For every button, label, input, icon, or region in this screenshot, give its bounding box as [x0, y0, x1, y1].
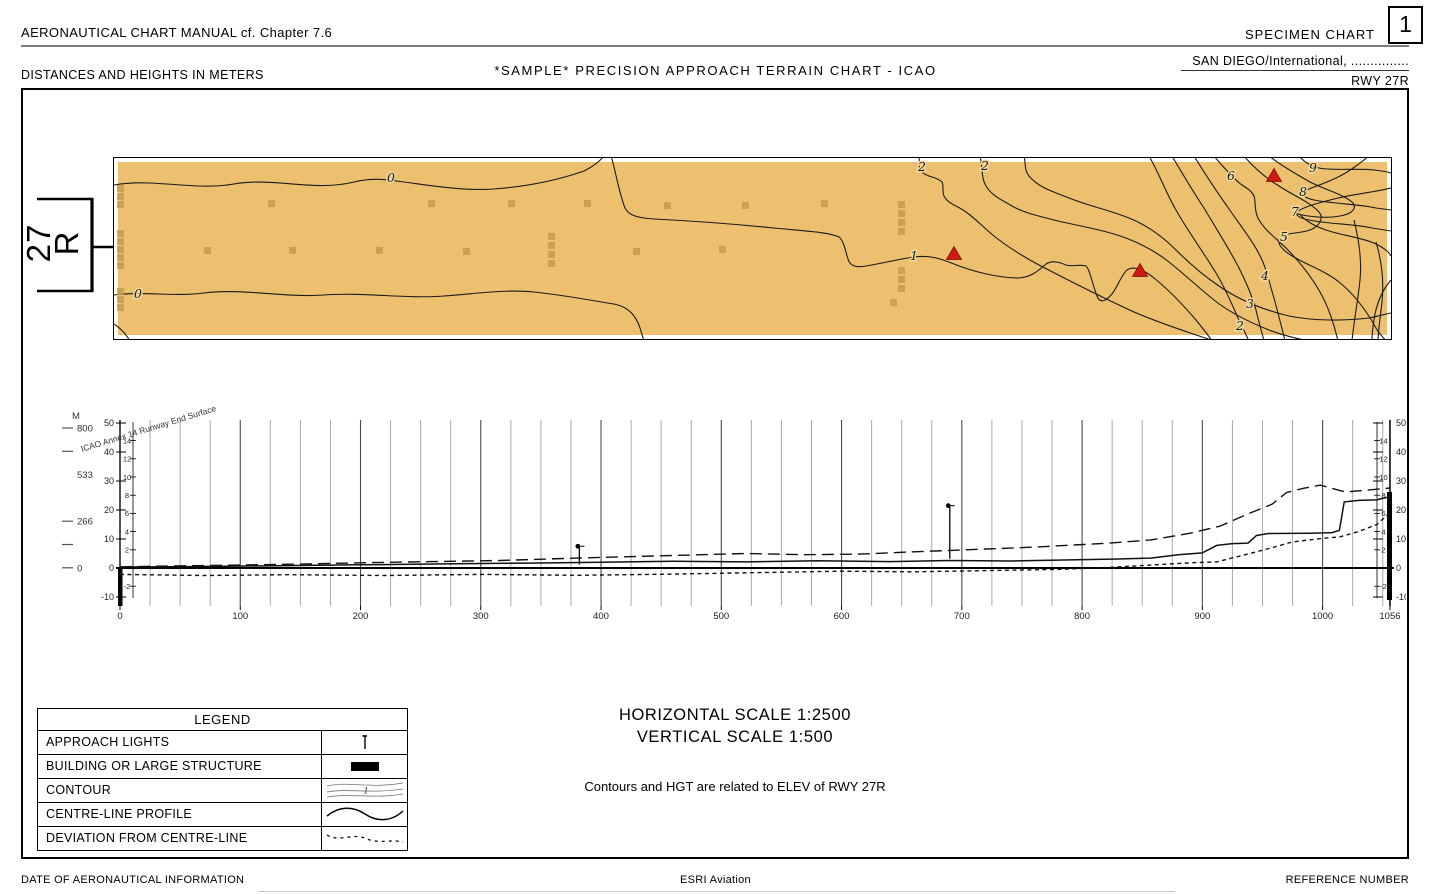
approach-light-symbols — [575, 503, 954, 564]
feet-tick-label: 8 — [125, 491, 129, 500]
manual-reference: AERONAUTICAL CHART MANUAL cf. Chapter 7.… — [21, 25, 332, 40]
building-symbol — [508, 200, 515, 207]
outer-scale-label: 533 — [77, 470, 93, 481]
legend-row: CENTRE-LINE PROFILE — [38, 803, 407, 827]
building-symbol — [117, 238, 124, 245]
building-symbol — [664, 202, 671, 209]
building-symbol — [117, 201, 124, 208]
building-symbol — [268, 200, 275, 207]
terrain-fill — [118, 162, 1387, 335]
sheet-number: 1 — [1399, 11, 1412, 37]
building-symbol — [117, 262, 124, 269]
x-axis-labels: 010020030040050060070080090010001056 — [117, 606, 1400, 620]
building-symbol — [898, 210, 905, 217]
outer-scale-label: 0 — [77, 563, 82, 574]
feet-tick-label: 14 — [1379, 436, 1387, 445]
legend-row: BUILDING OR LARGE STRUCTURE — [38, 755, 407, 779]
building-symbol — [898, 219, 905, 226]
contour-label: 2 — [917, 159, 926, 174]
runway-label: RWY 27R — [1351, 74, 1409, 88]
legend-row-label: DEVIATION FROM CENTRE-LINE — [38, 827, 322, 850]
x-tick-label: 800 — [1074, 611, 1090, 620]
building-legend-symbol — [322, 755, 407, 778]
right-runway-end-bar — [1387, 492, 1392, 600]
contour-label: 4 — [1260, 268, 1269, 283]
series-short-dash — [120, 513, 1390, 576]
building-symbol — [117, 254, 124, 261]
centreline-legend-symbol — [322, 803, 407, 826]
feet-tick-label: -2 — [124, 582, 131, 591]
contour-label: 7 — [1291, 204, 1299, 219]
building-symbol — [898, 201, 905, 208]
meter-tick-label: 50 — [104, 418, 114, 428]
profile-chart-panel: M800533266050403020100-101412108642-2504… — [58, 406, 1406, 625]
feet-tick-label: 12 — [123, 455, 131, 464]
header-rule — [21, 45, 1409, 47]
building-symbol — [204, 247, 211, 254]
building-symbol — [633, 248, 640, 255]
building-symbol — [463, 248, 470, 255]
gridlines — [120, 420, 1390, 606]
meter-tick-label: 0 — [109, 563, 114, 573]
building-symbol — [898, 267, 905, 274]
contour-label: 2 — [980, 158, 989, 173]
building-symbol — [548, 260, 555, 267]
building-symbol — [117, 296, 124, 303]
building-symbol — [289, 247, 296, 254]
feet-tick-label: 10 — [1379, 473, 1387, 482]
sheet-number-box: 1 — [1388, 6, 1423, 44]
contour-label: 2 — [1235, 318, 1244, 333]
x-tick-label: 0 — [117, 611, 122, 620]
approach-light-top — [575, 544, 580, 549]
x-tick-label: 600 — [834, 611, 850, 620]
legend-row-label: CENTRE-LINE PROFILE — [38, 803, 322, 826]
contour-note: Contours and HGT are related to ELEV of … — [420, 779, 1050, 794]
x-tick-label: 900 — [1194, 611, 1210, 620]
building-symbol — [117, 246, 124, 253]
series-solid — [120, 497, 1390, 567]
building-symbol — [117, 230, 124, 237]
building-symbol — [821, 200, 828, 207]
feet-tick-label: 4 — [125, 527, 129, 536]
building-symbol — [898, 276, 905, 283]
meter-tick-label: 30 — [104, 476, 114, 486]
runway-letter: R — [53, 198, 81, 288]
svg-text:1: 1 — [363, 787, 368, 796]
feet-tick-label: 4 — [1381, 527, 1385, 536]
legend-row-label: CONTOUR — [38, 779, 322, 802]
x-tick-label: 1000 — [1312, 611, 1333, 620]
meter-tick-label: -10 — [101, 592, 114, 602]
contour-label: 8 — [1299, 184, 1307, 199]
footer-producer: ESRI Aviation — [0, 874, 1431, 886]
building-symbol — [548, 233, 555, 240]
feet-tick-label: -2 — [1380, 582, 1387, 591]
meter-tick-label: 20 — [104, 505, 114, 515]
feet-tick-label: 2 — [1381, 546, 1385, 555]
contour-label: 0 — [387, 170, 395, 185]
x-tick-label: 1056 — [1379, 611, 1400, 620]
building-symbol — [584, 200, 591, 207]
contour-label: 0 — [134, 286, 142, 301]
building-symbol — [890, 299, 897, 306]
contour-label: 5 — [1280, 229, 1288, 244]
deviation-legend-symbol — [322, 827, 407, 850]
approach-lights-legend-symbol — [322, 731, 407, 754]
building-symbol — [428, 200, 435, 207]
page-edge-line — [258, 891, 1175, 892]
meter-tick-label: 10 — [1396, 534, 1406, 544]
x-tick-label: 200 — [353, 611, 369, 620]
aerodrome-name: SAN DIEGO/International, ............... — [1181, 54, 1409, 71]
profile-chart: M800533266050403020100-101412108642-2504… — [58, 406, 1406, 620]
building-symbol — [117, 193, 124, 200]
series-long-dash — [120, 485, 1390, 567]
meter-tick-label: 30 — [1396, 476, 1406, 486]
meter-tick-label: 50 — [1396, 418, 1406, 428]
x-tick-label: 100 — [232, 611, 248, 620]
terrain-map-panel: 0012269875432 — [113, 157, 1392, 340]
meter-tick-label: 10 — [104, 534, 114, 544]
feet-tick-label: 2 — [125, 546, 129, 555]
building-symbol — [117, 185, 124, 192]
feet-tick-label: 12 — [1379, 455, 1387, 464]
legend: LEGEND APPROACH LIGHTSBUILDING OR LARGE … — [37, 708, 408, 851]
contour-label: 9 — [1309, 160, 1317, 175]
building-symbol — [117, 304, 124, 311]
meter-tick-label: -10 — [1396, 592, 1406, 602]
outer-scale-unit: M — [72, 411, 80, 422]
contour-label: 6 — [1227, 168, 1235, 183]
building-symbol — [548, 251, 555, 258]
left-runway-end-bar — [118, 568, 123, 606]
outer-scale-label: 800 — [77, 424, 93, 435]
outer-meter-scale: M8005332660 — [62, 411, 93, 574]
meter-tick-label: 20 — [1396, 505, 1406, 515]
x-tick-label: 700 — [954, 611, 970, 620]
building-symbol — [376, 247, 383, 254]
feet-tick-label: 6 — [125, 509, 129, 518]
x-tick-label: 400 — [593, 611, 609, 620]
terrain-map: 0012269875432 — [114, 158, 1391, 339]
legend-row-label: APPROACH LIGHTS — [38, 731, 322, 754]
x-tick-label: 300 — [473, 611, 489, 620]
building-symbol — [719, 246, 726, 253]
contour-label: 3 — [1246, 296, 1254, 311]
feet-tick-label: 6 — [1381, 509, 1385, 518]
meter-tick-label: 40 — [1396, 447, 1406, 457]
x-tick-label: 500 — [713, 611, 729, 620]
annex14-surface-label: ICAO Annex 14 Runway End Surface — [80, 406, 218, 454]
outer-scale-label: 266 — [77, 517, 93, 528]
horizontal-scale-note: HORIZONTAL SCALE 1:2500 — [420, 706, 1050, 725]
building-symbol — [742, 202, 749, 209]
runway-designator: 27 R — [25, 198, 95, 288]
specimen-chart-label: SPECIMEN CHART — [1245, 27, 1375, 42]
footer-reference-label: REFERENCE NUMBER — [1286, 874, 1409, 886]
feet-tick-label: 10 — [123, 473, 131, 482]
vertical-scale-note: VERTICAL SCALE 1:500 — [420, 728, 1050, 747]
building-symbol — [898, 228, 905, 235]
building-symbol — [548, 242, 555, 249]
legend-title: LEGEND — [38, 709, 407, 731]
legend-row-label: BUILDING OR LARGE STRUCTURE — [38, 755, 322, 778]
legend-row: APPROACH LIGHTS — [38, 731, 407, 755]
meter-tick-label: 40 — [104, 447, 114, 457]
approach-light-top — [946, 503, 951, 508]
meter-tick-label: 0 — [1396, 563, 1401, 573]
legend-row: CONTOUR1 — [38, 779, 407, 803]
contour-legend-symbol: 1 — [322, 779, 407, 802]
building-symbol — [117, 288, 124, 295]
contour-label: 1 — [910, 248, 918, 263]
legend-row: DEVIATION FROM CENTRE-LINE — [38, 827, 407, 850]
building-symbol — [898, 285, 905, 292]
